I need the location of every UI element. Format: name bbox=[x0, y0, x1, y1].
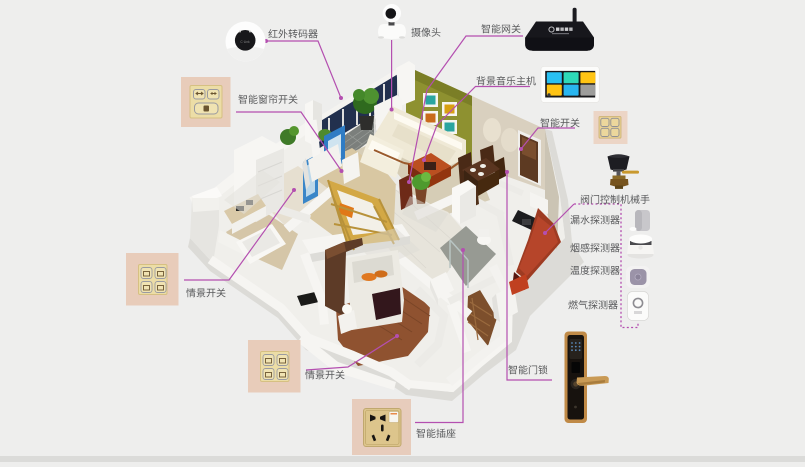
svg-text:C·Link: C·Link bbox=[240, 40, 250, 44]
